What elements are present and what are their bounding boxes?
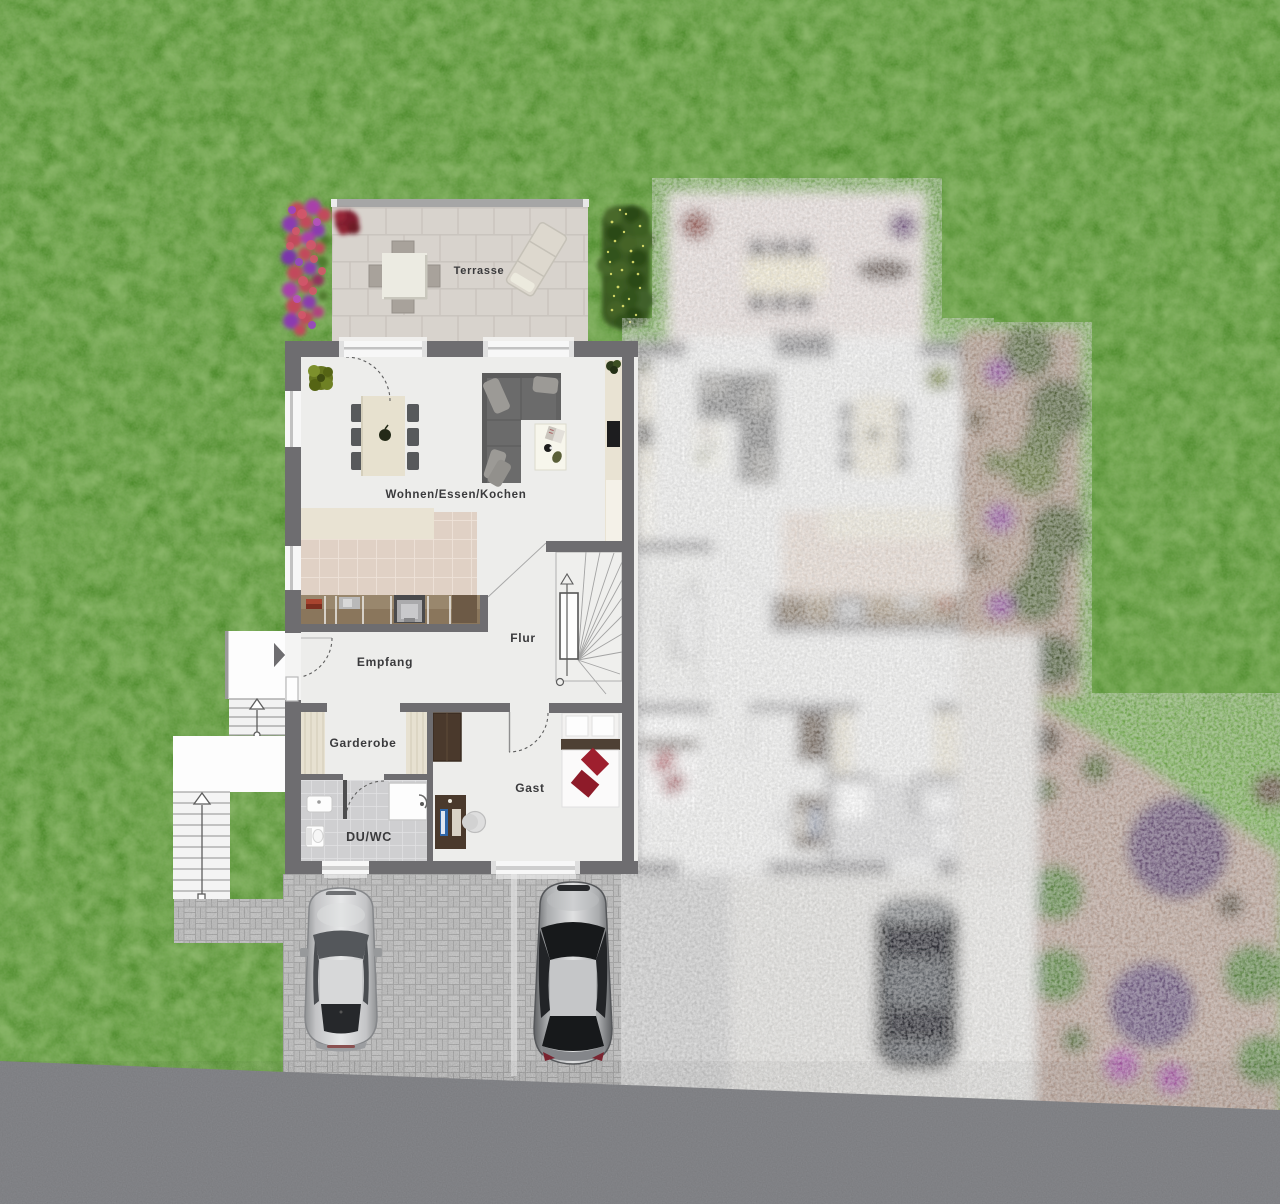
svg-text:Empfang: Empfang: [357, 655, 413, 669]
svg-text:Flur: Flur: [510, 631, 535, 645]
svg-text:Terrasse: Terrasse: [454, 265, 505, 277]
svg-text:Gast: Gast: [515, 781, 544, 795]
svg-text:Garderobe: Garderobe: [330, 736, 397, 750]
svg-text:DU/WC: DU/WC: [346, 830, 392, 844]
svg-text:Wohnen/Essen/Kochen: Wohnen/Essen/Kochen: [386, 489, 527, 501]
